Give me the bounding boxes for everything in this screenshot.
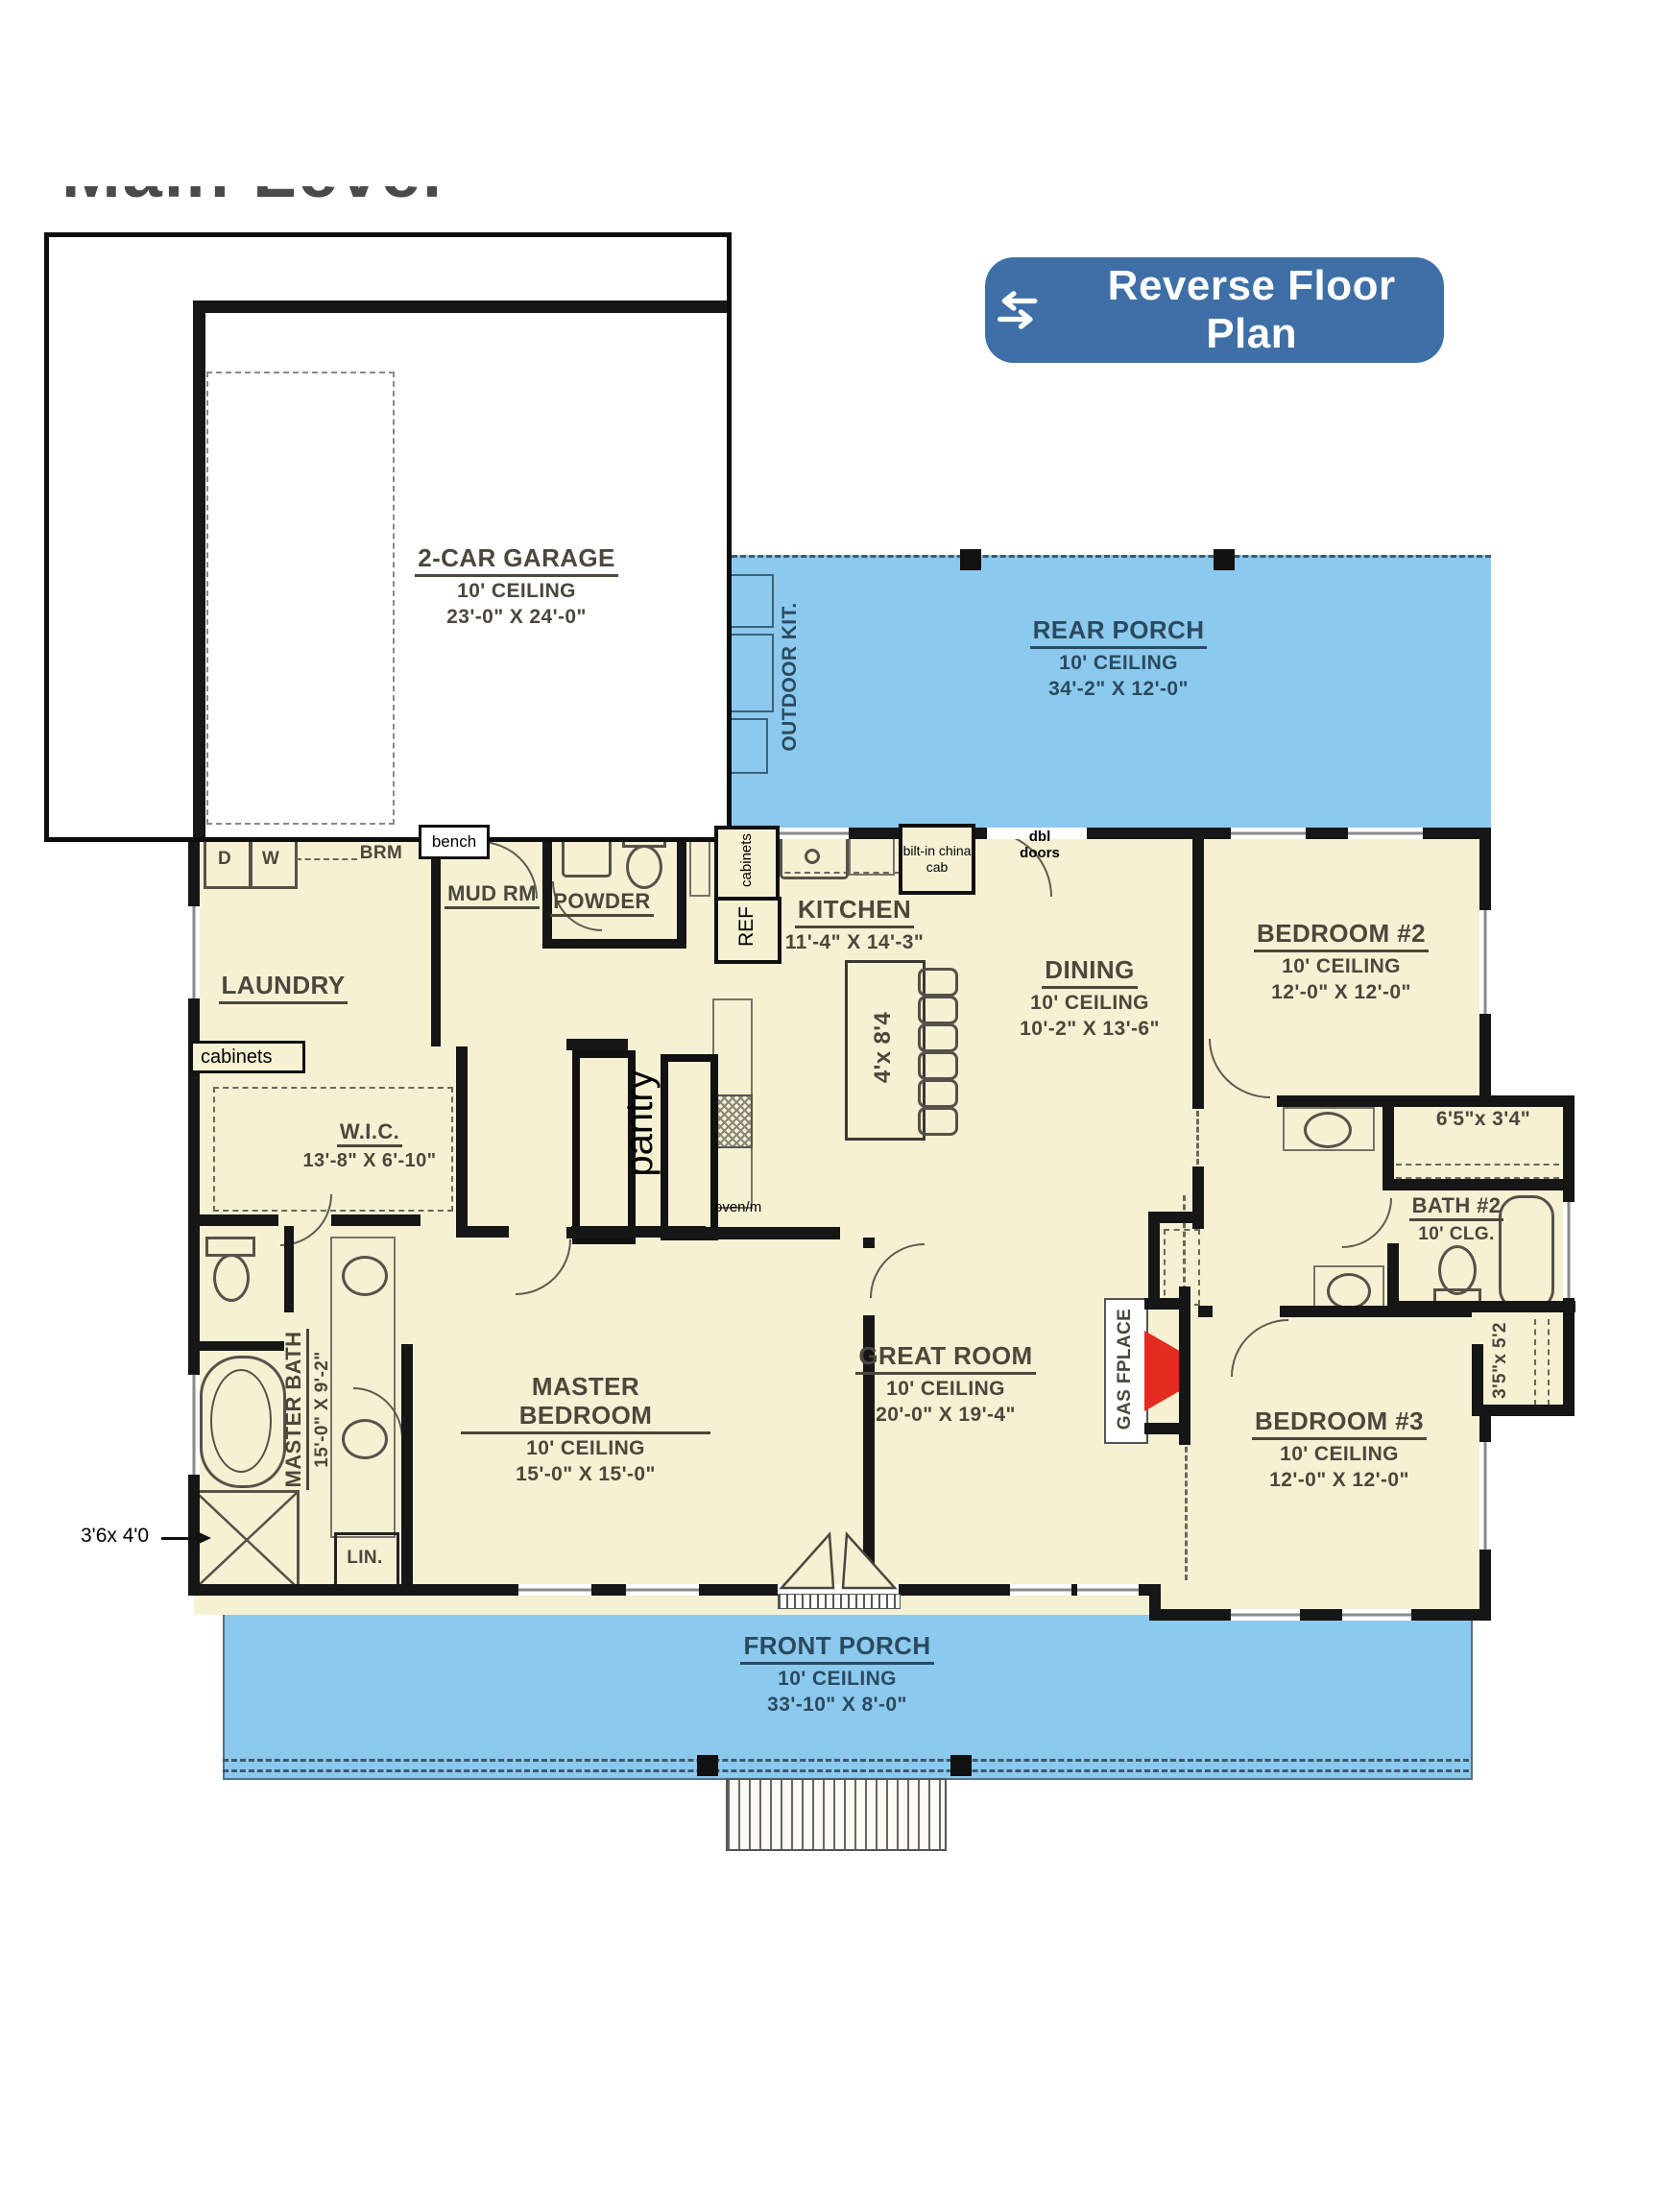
- island-dims-label: 4'x 8'4: [870, 995, 895, 1100]
- front-door-icon: [778, 1528, 899, 1596]
- porch-post: [950, 1755, 972, 1776]
- media-wall-dash: [1185, 1438, 1188, 1580]
- wall: [863, 1238, 875, 1248]
- wall: [284, 1226, 294, 1312]
- room-label-bedroom2: BEDROOM #2 10' CEILING 12'-0" X 12'-0": [1245, 920, 1437, 1004]
- master-toilet-icon: [213, 1254, 250, 1302]
- china-cabinet-label: bilt-in china cab: [902, 843, 972, 876]
- wall: [677, 828, 686, 949]
- garage-inset-box: 2-CAR GARAGE 10' CEILING 23'-0" X 24'-0": [44, 232, 732, 842]
- room-label-great-room: GREAT ROOM 10' CEILING 20'-0" X 19'-4": [850, 1342, 1042, 1427]
- room-label-garage: 2-CAR GARAGE 10' CEILING 23'-0" X 24'-0": [325, 544, 709, 629]
- outdoor-grill-icon: [726, 574, 774, 628]
- window: [1348, 828, 1423, 839]
- faucet-icon: [805, 849, 820, 864]
- room-label-powder: POWDER: [549, 889, 655, 917]
- reverse-floor-plan-label: Reverse Floor Plan: [1065, 262, 1438, 358]
- porch-post: [960, 549, 981, 570]
- fireplace-label: GAS FPLACE: [1115, 1302, 1134, 1436]
- wall: [1192, 839, 1204, 1109]
- chair-icon: [918, 1051, 958, 1080]
- window: [188, 1375, 200, 1475]
- wall: [193, 301, 727, 313]
- chair-icon: [918, 1107, 958, 1136]
- sink-icon: [342, 1256, 388, 1296]
- bench-label: bench: [432, 833, 476, 852]
- window: [1479, 1442, 1491, 1550]
- wall: [456, 1226, 509, 1238]
- bath2-toilet-icon: [1438, 1245, 1477, 1295]
- room-label-mud-room: MUD RM: [437, 881, 547, 909]
- reverse-floor-plan-button[interactable]: Reverse Floor Plan: [985, 257, 1444, 363]
- oven-label: oven/m: [714, 1200, 761, 1216]
- wall: [1148, 1212, 1204, 1223]
- wall: [192, 1341, 284, 1351]
- window: [1563, 1202, 1575, 1298]
- window: [188, 906, 200, 998]
- window: [1231, 1609, 1300, 1621]
- pantry-label: pantry: [618, 1051, 661, 1195]
- closet-shelf-dash: [1534, 1319, 1550, 1406]
- window: [1077, 1584, 1139, 1596]
- room-label-rear-porch: REAR PORCH 10' CEILING 34'-2" X 12'-0": [974, 616, 1262, 701]
- wall: [706, 1227, 840, 1239]
- room-label-bath2: BATH #2 10' CLG.: [1394, 1193, 1519, 1245]
- wall: [1382, 1107, 1394, 1190]
- wall: [1144, 1298, 1190, 1310]
- laundry-cabinets-box: cabinets: [190, 1041, 305, 1073]
- room-label-dining: DINING 10' CEILING 10'-2" X 13'-6": [994, 956, 1186, 1041]
- wall: [542, 939, 686, 949]
- room-label-master-bedroom: MASTER BEDROOM 10' CEILING 15'-0" X 15'-…: [461, 1373, 710, 1486]
- window: [776, 828, 849, 839]
- callout-arrow: [161, 1537, 200, 1540]
- window: [1342, 1609, 1411, 1621]
- kitchen-cabinets-label: cabinets: [739, 824, 755, 897]
- chair-icon: [918, 1023, 958, 1052]
- bathtub-inner: [210, 1369, 272, 1473]
- chair-icon: [918, 1079, 958, 1108]
- sink-icon: [1304, 1112, 1352, 1148]
- sink-icon: [1327, 1273, 1371, 1310]
- wall: [1277, 1095, 1479, 1107]
- wall: [200, 1214, 278, 1226]
- room-label-wic: W.I.C. 13'-8" X 6'-10": [288, 1119, 451, 1172]
- wall: [1179, 1286, 1190, 1445]
- rear-porch-edge: [723, 555, 1491, 558]
- media-wall-dash: [1183, 1195, 1186, 1291]
- linen-label: LIN.: [336, 1548, 394, 1569]
- wall: [1198, 1306, 1213, 1317]
- fridge-label: REF: [735, 895, 757, 958]
- wall: [401, 1344, 413, 1584]
- chair-icon: [918, 996, 958, 1024]
- wall: [1472, 1344, 1483, 1416]
- callout-arrowhead: [197, 1531, 211, 1545]
- wall: [456, 1046, 468, 1226]
- chair-icon: [918, 968, 958, 997]
- wall: [1144, 1423, 1190, 1434]
- closet-bed2-label: 6'5"x 3'4": [1411, 1108, 1555, 1131]
- porch-post: [697, 1755, 718, 1776]
- swap-arrows-icon: [991, 288, 1044, 332]
- dishwasher-icon: [849, 833, 895, 876]
- wall: [331, 1214, 421, 1226]
- room-label-bedroom3: BEDROOM #3 10' CEILING 12'-0" X 12'-0": [1243, 1407, 1435, 1492]
- broom-closet-label: BRM: [348, 843, 415, 864]
- porch-post: [1214, 549, 1235, 570]
- door-sill: [778, 1594, 901, 1609]
- wall: [1382, 1179, 1575, 1190]
- room-label-kitchen: KITCHEN 11'-4" X 14'-3": [758, 896, 950, 954]
- wall: [1149, 1609, 1491, 1621]
- room-label-laundry: LAUNDRY: [206, 972, 360, 1004]
- dryer-label: D: [207, 849, 242, 870]
- cased-opening-dash: [1196, 1111, 1199, 1165]
- window: [626, 1584, 699, 1596]
- pantry-shelf: [661, 1054, 718, 1240]
- room-label-outdoor-kitchen: OUTDOOR KIT.: [779, 592, 802, 761]
- double-doors-label: dbl doors: [1013, 829, 1067, 861]
- powder-toilet-icon: [626, 845, 662, 889]
- cabinets-label: cabinets: [201, 1046, 273, 1068]
- wall: [1280, 1306, 1472, 1317]
- washer-label: W: [253, 849, 288, 870]
- outdoor-fridge-icon: [726, 718, 768, 774]
- front-steps: [726, 1778, 947, 1851]
- porch-railing: [223, 1759, 1469, 1762]
- wall: [1479, 1095, 1575, 1107]
- wall: [1148, 1223, 1160, 1306]
- wall: [193, 301, 205, 837]
- window: [1010, 1584, 1071, 1596]
- room-label-master-bath: MASTER BATH 15'-0" X 9'-2": [281, 1313, 337, 1505]
- room-label-front-porch: FRONT PORCH 10' CEILING 33'-10" X 8'-0": [645, 1632, 1029, 1717]
- porch-railing: [223, 1769, 1469, 1772]
- shower-dims-label: 3'6x 4'0: [81, 1525, 149, 1547]
- floor-plan-page: Main Level Reverse Floor Plan OUTDOOR KI…: [0, 0, 1659, 2212]
- window: [518, 1584, 591, 1596]
- wall: [571, 1226, 706, 1238]
- closet-shelf-dash: [1396, 1164, 1559, 1179]
- page-title: Main Level: [61, 186, 484, 232]
- bench-label-box: bench: [419, 825, 490, 859]
- wall: [431, 839, 441, 1046]
- range-icon: [712, 1094, 753, 1148]
- closet-bed3-label: 3'5"x 5'2: [1490, 1312, 1509, 1408]
- china-cabinet-box: bilt-in china cab: [899, 824, 975, 895]
- window: [1231, 828, 1306, 839]
- window: [1479, 910, 1491, 1014]
